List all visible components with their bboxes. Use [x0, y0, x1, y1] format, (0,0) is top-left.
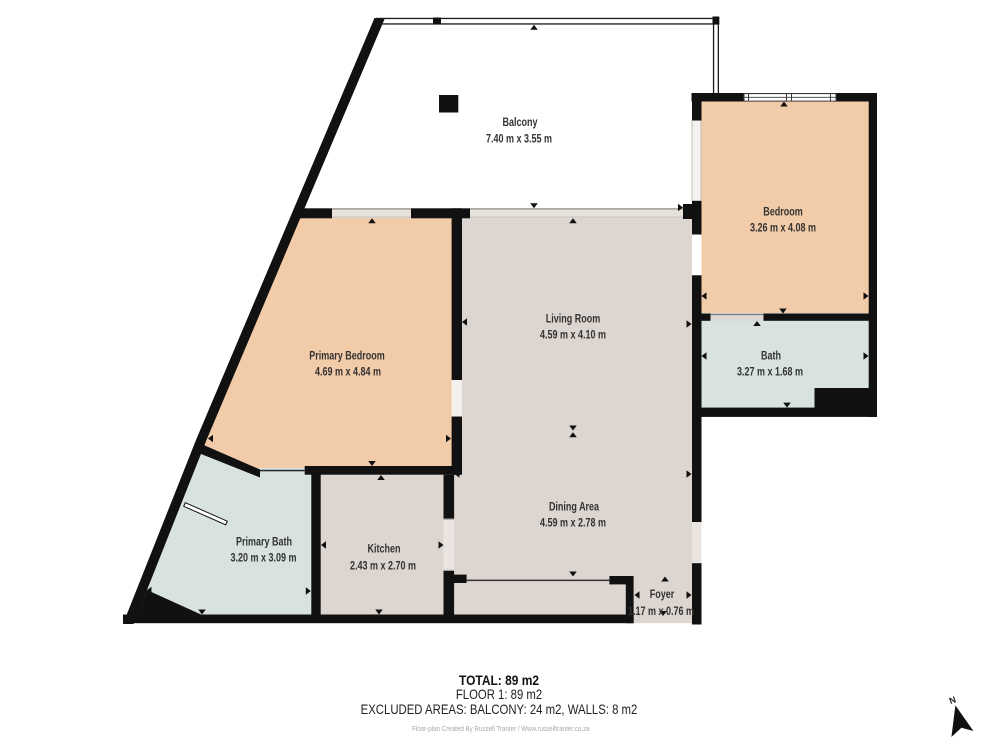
svg-text:4.69 m x 4.84 m: 4.69 m x 4.84 m: [315, 365, 381, 379]
svg-text:4.59 m x 2.78 m: 4.59 m x 2.78 m: [540, 516, 606, 530]
svg-text:Bath: Bath: [761, 349, 781, 363]
svg-text:Balcony: Balcony: [503, 116, 538, 130]
svg-text:7.40 m x 3.55 m: 7.40 m x 3.55 m: [486, 132, 552, 146]
svg-text:Bedroom: Bedroom: [763, 205, 802, 219]
svg-text:4.59 m x 4.10 m: 4.59 m x 4.10 m: [540, 328, 606, 342]
svg-text:TOTAL: 89 m2: TOTAL: 89 m2: [459, 672, 539, 688]
svg-text:1.17 m x 0.76 m: 1.17 m x 0.76 m: [628, 605, 694, 619]
svg-text:Foyer: Foyer: [650, 588, 674, 602]
svg-text:Kitchen: Kitchen: [368, 542, 401, 556]
svg-text:3.26 m x 4.08 m: 3.26 m x 4.08 m: [750, 221, 816, 235]
svg-text:N: N: [948, 694, 958, 706]
svg-text:EXCLUDED AREAS: BALCONY: 24 m2: EXCLUDED AREAS: BALCONY: 24 m2, WALLS: 8…: [361, 702, 638, 717]
svg-text:3.27 m x 1.68 m: 3.27 m x 1.68 m: [737, 365, 803, 379]
svg-text:Primary Bedroom: Primary Bedroom: [309, 349, 384, 363]
svg-text:Primary Bath: Primary Bath: [236, 535, 292, 549]
svg-text:3.20 m x 3.09 m: 3.20 m x 3.09 m: [231, 551, 297, 565]
svg-text:2.43 m x 2.70 m: 2.43 m x 2.70 m: [350, 559, 416, 573]
svg-text:Floor-plan Created By Russell: Floor-plan Created By Russell Tranter / …: [412, 726, 590, 733]
svg-text:FLOOR 1: 89 m2: FLOOR 1: 89 m2: [456, 687, 542, 702]
svg-text:Dining Area: Dining Area: [549, 500, 599, 514]
svg-text:Living Room: Living Room: [546, 312, 600, 326]
